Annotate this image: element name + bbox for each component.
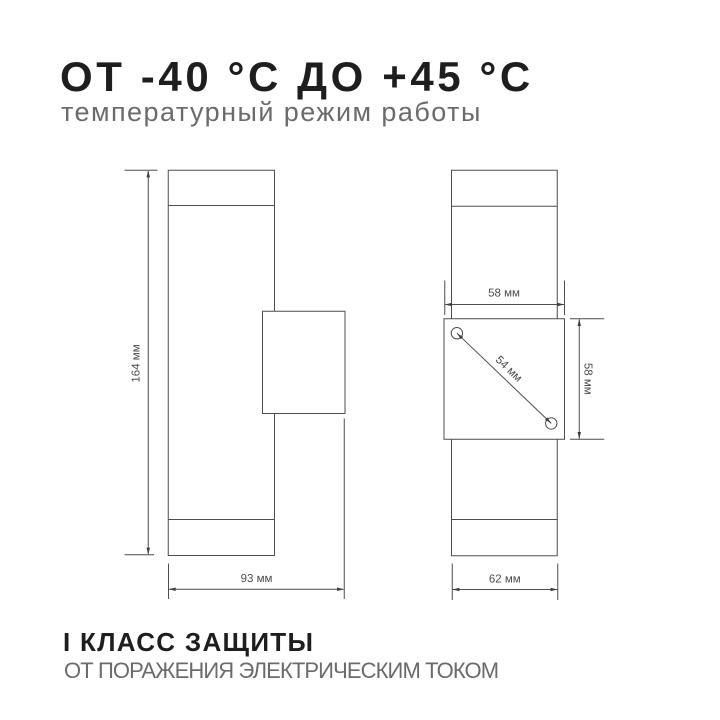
svg-text:164 мм: 164 мм — [131, 344, 143, 382]
svg-text:93 мм: 93 мм — [241, 573, 273, 585]
svg-text:62 мм: 62 мм — [489, 573, 521, 585]
svg-text:58 мм: 58 мм — [582, 363, 594, 395]
svg-text:58 мм: 58 мм — [488, 288, 520, 300]
